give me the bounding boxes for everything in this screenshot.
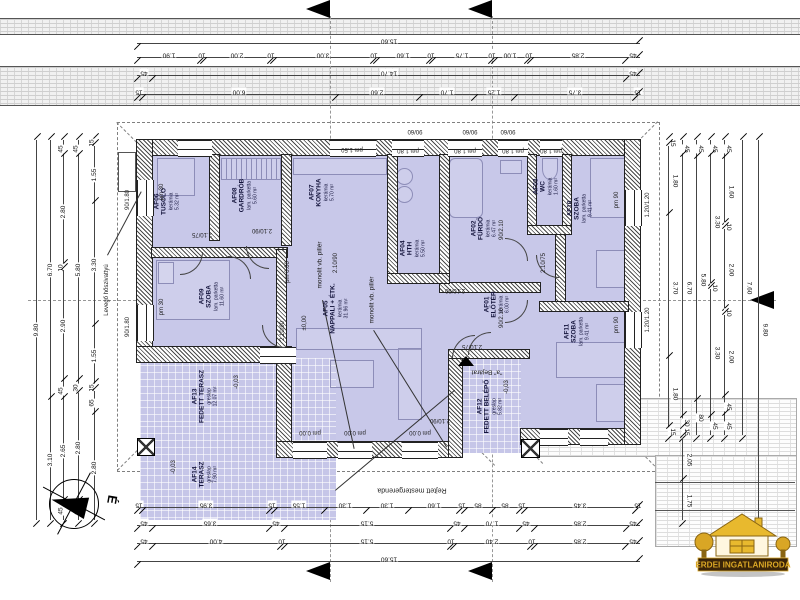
dimension-segment: 3.70 [668,216,678,360]
dimension-segment: 1.30 [324,498,366,508]
annotation-entrance: "a" Bejárat [472,369,503,376]
dimension-col-left-3: 452.80102.90452.6545 [63,140,73,520]
toilet [542,158,558,180]
window-size-label: 90/1.80 [125,317,131,337]
dimension-segment: 1.80 [668,359,678,429]
dimension-segment: 15 [635,85,640,95]
parapet-label: pm 0.00 [409,429,431,435]
door-size-label: 90/2.10 [499,220,505,240]
window-size-label: 90/60 [462,128,477,134]
elevation-label: -0,03 [504,380,510,394]
window-size-label: 1.20/1.20 [645,307,651,332]
parapet-label: pm 0.00 [285,261,291,283]
parapet-label: pm 0.00 [344,429,366,435]
dimension-segment: 45 [710,418,720,435]
partition [540,302,628,311]
sofa-side [398,348,422,420]
section-marker-icon [306,562,330,580]
window [338,442,372,459]
dimension-segment: 7.60 [742,140,752,435]
dimension-segment: 3.30 [94,204,104,328]
dimension-segment: 15 [668,429,678,435]
dimension-segment: 2.90 [63,270,73,382]
dimension-segment: 3.00 [273,48,373,58]
door-size-label: 2.10/75 [462,343,482,349]
window-size-label: 90/60 [500,128,515,134]
window-height-label: pm 1.80 [540,147,562,153]
terrace-pillar [137,438,155,456]
dimension-segment: 15.60 [137,552,640,562]
dimension-segment: 1.55 [274,498,324,508]
dimension-segment: 4.00 [152,534,281,544]
dimension-segment: 2.85 [530,48,625,58]
dimension-row-bottom-2: 453.65455.15451.70452.8545 [137,516,640,526]
door-size-label: 2.10/90 [280,321,286,341]
dimension-segment: 6.00 [142,85,335,95]
window [625,190,642,226]
dimension-segment: 45 [626,66,641,76]
dimension-segment: 45 [269,516,284,526]
window [137,180,154,216]
dimension-col-right-1: 151.803.701.8015 [668,140,678,435]
window-size-label: 1.20/1.20 [645,192,651,217]
dimension-row-top-c: 156.002.601.701.253.7515 [137,85,640,95]
dimension-segment: 1.80 [668,146,678,216]
dimension-segment: 2.00 [724,315,734,398]
dimension-segment: 2.85 [534,516,626,526]
dimension-segment: 1.25 [474,85,514,95]
window [580,429,608,446]
dimension-segment: 15.60 [137,34,640,44]
dimension-segment: 1.75 [682,482,692,520]
dimension-segment: 45 [137,66,152,76]
dimension-segment: 1.75 [432,48,490,58]
elevation-label: ±0,00 [302,316,308,331]
dimension-segment: 2.85 [534,534,626,544]
dimension-segment: 1.70 [464,516,519,526]
pillow [158,262,174,284]
wardrobe-shelves [221,158,281,180]
dimension-segment: 45 [137,534,152,544]
dimension-segment: 45 [710,140,720,157]
terrace-door-opening [260,347,296,364]
dimension-col-right-7: 9.80 [758,140,768,520]
north-compass [45,475,103,533]
north-label: É [104,494,120,505]
dimension-segment: 1.55 [94,327,104,385]
dimension-segment: 45 [625,48,640,58]
section-marker-icon [468,0,492,18]
dimension-col-left-2: 6.703.10 [50,140,60,520]
dimension-segment: 1.00 [494,48,527,58]
parapet-label: pm 0.00 [299,429,321,435]
bathtub [449,158,483,218]
window [178,140,212,157]
dimension-segment: 5.80 [696,159,706,402]
logo-house-icon: ERDEI INGATLANIRODA [692,510,794,580]
covered-terrace-fill [140,358,336,426]
dimension-segment: 1.60 [408,498,460,508]
dimension-segment: 1.70 [419,85,474,95]
dimension-segment: 45 [724,398,734,417]
elevation-label: -0,03 [234,375,240,389]
dimension-col-right-4: 453.30103.3045 [710,140,720,435]
dimension-segment: 2.00 [724,229,734,312]
entry-pillar [521,439,540,458]
annotation-heat-pump: Levegő hőszivattyú [104,264,110,315]
window-height-label: pm 1.80 [502,147,524,153]
window-height-label: pm 1.50 [341,146,363,152]
floor-plan-canvas: AF06TUSOLÓ kerámia5.32 m² AF08GARDRÓB la… [0,0,800,600]
window [402,442,438,459]
door-size-label: 2.10/75 [541,253,547,273]
bathroom-sink [500,160,522,174]
window [293,442,327,459]
window-size-label: 90/60 [407,128,422,134]
partition [528,155,536,233]
annotation-hidden-beam: Rejtett mestergerenda [377,487,446,494]
window-height-label: pm 1.80 [397,147,419,153]
wall-entry-left [449,357,462,457]
section-marker-icon [306,0,330,18]
dimension-segment: 1.60 [724,159,734,225]
dimension-col-left-4: 455.80302.8045 [78,140,88,520]
desk [596,250,626,288]
dimension-row-bottom-total: 15.60 [137,552,640,562]
door-size-label: 2.10/90 [333,253,339,273]
dimension-col-right-6: 7.60 [742,140,752,435]
dimension-segment: 45 [450,516,465,526]
bed [556,342,628,378]
dimension-col-right-3: 455.8080 [696,140,706,435]
dimension-segment: 1.55 [94,146,104,204]
dimension-segment: 45 [519,516,534,526]
door-size-label: 2.10/90 [430,417,450,423]
dimension-col-right-2: 456.703015 [682,140,692,435]
dimension-segment: 9.80 [758,140,768,520]
partition [388,274,449,283]
dimension-segment: 80 [696,402,706,435]
dimension-col-left-1: 9.80 [36,140,46,520]
dimension-segment: 2.40 [453,534,530,544]
wall-east [625,140,640,444]
parapet-label: pm 30 [159,184,165,201]
partition [440,155,449,287]
dimension-segment: 45 [78,140,88,157]
dimension-segment: 6.70 [682,157,692,417]
dimension-row-top-a: 1.90102.00103.00101.60101.75101.00102.85… [137,48,640,58]
dimension-segment: 14.70 [152,66,626,76]
window [625,312,642,348]
dryer [396,186,413,203]
parapet-label: pm 90 [614,317,620,334]
dimension-col-left-5: 151.553.301.5515652.80 [94,140,104,520]
dimension-segment: 5.15 [284,516,450,526]
heat-pump-unit [118,152,136,192]
dimension-segment: 45 [137,516,152,526]
partition [528,226,571,234]
kitchen-counter [293,158,387,175]
dimension-segment: 5.15 [284,534,450,544]
partition [210,155,219,240]
desk [596,384,626,422]
door-size-label: 2.10/90 [445,287,465,293]
window [540,429,568,446]
site-band-top [0,18,800,35]
dimension-row-bottom-3: 454.00105.15102.40102.8545 [137,534,640,544]
partition [282,155,291,245]
window-height-label: pm 1.80 [454,147,476,153]
dimension-col-right-2b: 2.051.75 [682,438,692,520]
dimension-segment: 5.80 [78,157,88,382]
dimension-segment: 1.60 [376,48,429,58]
dimension-segment: 1.30 [366,498,408,508]
step-line [655,482,795,483]
dimension-segment: 3.30 [710,289,720,417]
dimension-segment: 9.80 [36,140,46,520]
dimension-segment: 45 [626,516,641,526]
door-size-label: 90/2.10 [499,308,505,328]
dimension-segment: 85 [492,498,519,508]
dimension-row-top-b: 4514.7045 [137,66,640,76]
dimension-segment: 3.30 [710,157,720,285]
dimension-segment: 3.65 [152,516,270,526]
dimension-segment: 3.75 [514,85,635,95]
door-size-label: 2.10/75 [192,231,212,237]
dimension-segment: 2.80 [63,157,73,266]
logo-text: ERDEI INGATLANIRODA [695,561,790,570]
dimension-segment: 2.60 [335,85,419,95]
washing-machine [396,168,413,185]
elevation-label: -0,03 [171,460,177,474]
window-size-label: 90/1.80 [125,190,131,210]
bed [590,158,626,218]
dimension-segment: 1.90 [137,48,200,58]
section-marker-icon [468,562,492,580]
dimension-segment: 85 [464,498,491,508]
dimension-row-top-total: 15.60 [137,34,640,44]
dimension-col-right-5: 451.60102.00102.004545 [724,140,734,435]
annotation-monolith-pillar: monolit vb. pillér [317,242,324,289]
door-size-label: 2.10/90 [252,227,272,233]
dimension-segment: 15 [635,498,640,508]
sofa [296,328,422,350]
annotation-monolith-pillar: monolit vb. pillér [369,277,376,324]
partition [563,155,571,233]
window [137,305,154,341]
wall-north [137,140,640,155]
parapet-label: pm 30 [159,299,165,316]
dimension-segment: 45 [625,534,640,544]
dimension-segment: 3.45 [524,498,635,508]
dimension-segment: 3.95 [142,498,269,508]
company-logo: ERDEI INGATLANIRODA [692,510,794,580]
partition [388,155,397,283]
dimension-row-bottom-1: 153.95151.551.301.301.60158585153.4515 [137,498,640,508]
parapet-label: pm 90 [614,192,620,209]
dimension-segment: 45 [682,140,692,157]
dimension-segment: 2.00 [203,48,269,58]
dimension-segment: 45 [724,416,734,435]
entrance-arrow-icon [458,356,474,366]
